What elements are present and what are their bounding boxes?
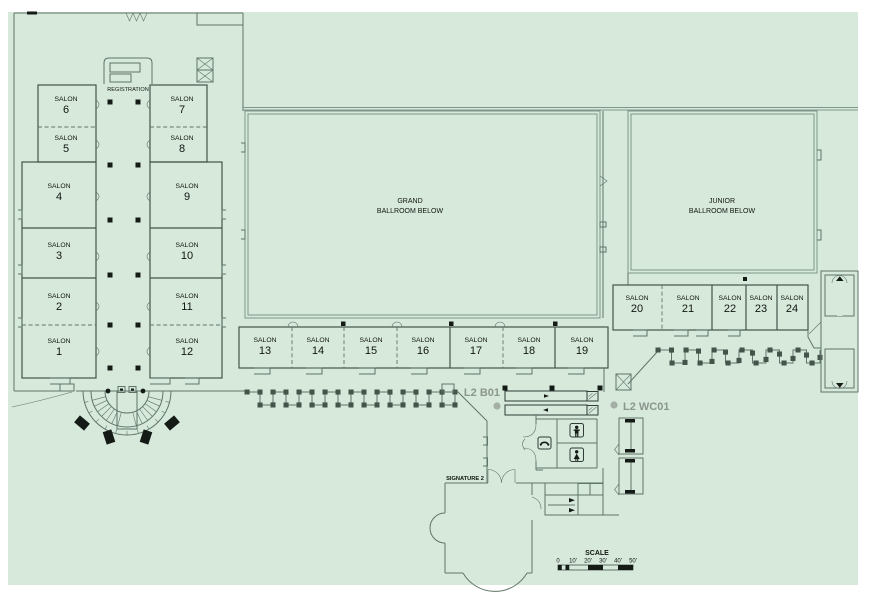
salon-number: 13 xyxy=(259,345,271,357)
salon-word: SALON xyxy=(749,295,772,302)
salon-word: SALON xyxy=(175,242,198,249)
marker-wc01-label: L2 WC01 xyxy=(623,401,669,413)
salon-number: 23 xyxy=(755,303,767,315)
salon-word: SALON xyxy=(517,337,540,344)
scale-tick: 40' xyxy=(614,559,622,565)
salon-word: SALON xyxy=(253,337,276,344)
salon-number: 3 xyxy=(56,250,62,262)
salon-word: SALON xyxy=(175,338,198,345)
salon-word: SALON xyxy=(47,338,70,345)
salon-number: 17 xyxy=(470,345,482,357)
junior-ballroom-label-1: JUNIOR xyxy=(709,198,735,205)
salon-number: 4 xyxy=(56,191,62,203)
salon-number: 18 xyxy=(523,345,535,357)
salon-number: 7 xyxy=(179,104,185,116)
salon-word: SALON xyxy=(359,337,382,344)
salon-number: 24 xyxy=(786,303,798,315)
salon-number: 14 xyxy=(312,345,324,357)
salon-word: SALON xyxy=(625,295,648,302)
salon-word: SALON xyxy=(47,293,70,300)
wall-detail xyxy=(27,12,37,15)
column xyxy=(141,389,146,394)
salon-word: SALON xyxy=(47,183,70,190)
salon-word: SALON xyxy=(175,183,198,190)
salon-word: SALON xyxy=(175,293,198,300)
salon-word: SALON xyxy=(54,96,77,103)
salon-word: SALON xyxy=(306,337,329,344)
salon-word: SALON xyxy=(676,295,699,302)
floor-plan-page: REGISTRATION xyxy=(0,0,872,600)
column xyxy=(106,389,111,394)
salon-number: 19 xyxy=(576,345,588,357)
salon-word: SALON xyxy=(411,337,434,344)
salon-word: SALON xyxy=(718,295,741,302)
salon-number: 21 xyxy=(682,303,694,315)
salon-number: 9 xyxy=(184,191,190,203)
salon-number: 6 xyxy=(63,104,69,116)
salon-number: 22 xyxy=(724,303,736,315)
marker-wc01-dot xyxy=(610,401,617,408)
scale-tick: 20' xyxy=(584,559,592,565)
registration-label: REGISTRATION xyxy=(107,87,149,93)
salon-number: 5 xyxy=(63,143,69,155)
scale-tick: 50' xyxy=(629,559,637,565)
grand-ballroom-label-1: GRAND xyxy=(397,198,422,205)
salon-number: 2 xyxy=(56,301,62,313)
salon-number: 8 xyxy=(179,143,185,155)
salon-word: SALON xyxy=(780,295,803,302)
marker-b01-label: L2 B01 xyxy=(464,387,500,399)
floor-plan-drawing: REGISTRATION xyxy=(0,0,872,600)
scale-tick: 10' xyxy=(569,559,577,565)
scale-tick: 30' xyxy=(599,559,607,565)
salon-word: SALON xyxy=(170,135,193,142)
salon-word: SALON xyxy=(47,242,70,249)
salon-number: 12 xyxy=(181,346,193,358)
scale-title: SCALE xyxy=(585,550,609,557)
salon-number: 11 xyxy=(181,301,192,313)
column xyxy=(743,277,747,281)
salon-word: SALON xyxy=(464,337,487,344)
junior-ballroom-label-2: BALLROOM BELOW xyxy=(689,208,756,215)
salon-word: SALON xyxy=(570,337,593,344)
marker-b01-dot xyxy=(493,402,500,409)
grand-ballroom-label-2: BALLROOM BELOW xyxy=(377,208,444,215)
salon-word: SALON xyxy=(54,135,77,142)
salon-number: 15 xyxy=(365,345,377,357)
salon-number: 16 xyxy=(417,345,429,357)
salon-number: 20 xyxy=(631,303,643,315)
salon-number: 1 xyxy=(56,346,62,358)
salon-word: SALON xyxy=(170,96,193,103)
signature-label: SIGNATURE 2 xyxy=(446,476,484,482)
salon-number: 10 xyxy=(181,250,193,262)
